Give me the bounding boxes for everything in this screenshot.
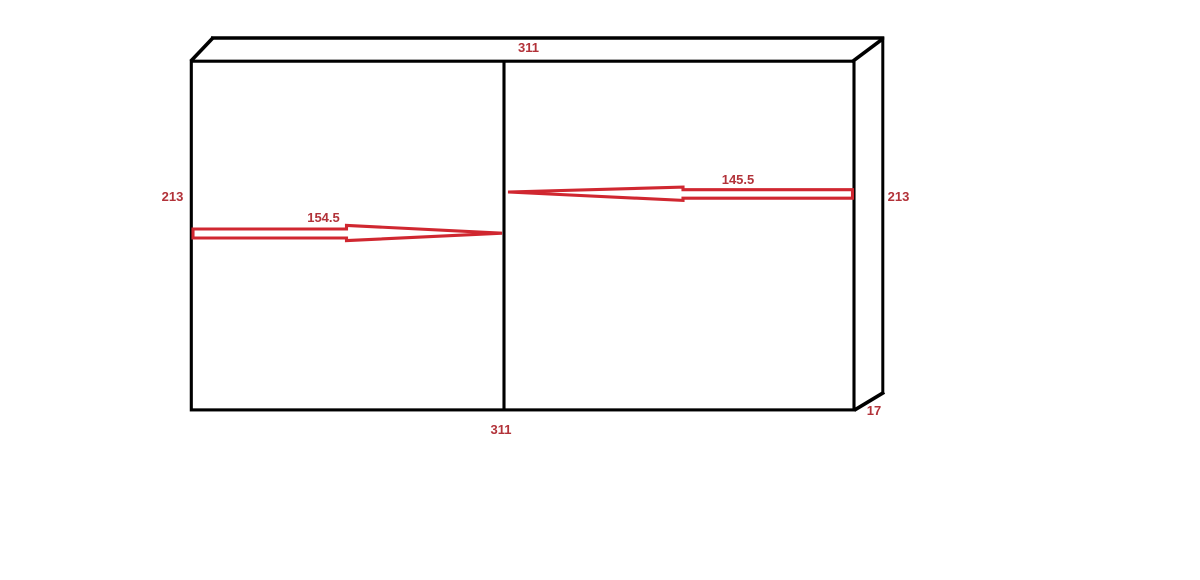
svg-text:213: 213 xyxy=(162,189,184,204)
svg-text:17: 17 xyxy=(867,403,881,418)
svg-text:311: 311 xyxy=(518,40,539,55)
svg-text:213: 213 xyxy=(888,189,910,204)
svg-text:145.5: 145.5 xyxy=(722,172,755,187)
svg-text:311: 311 xyxy=(491,422,512,437)
svg-text:154.5: 154.5 xyxy=(307,210,340,225)
